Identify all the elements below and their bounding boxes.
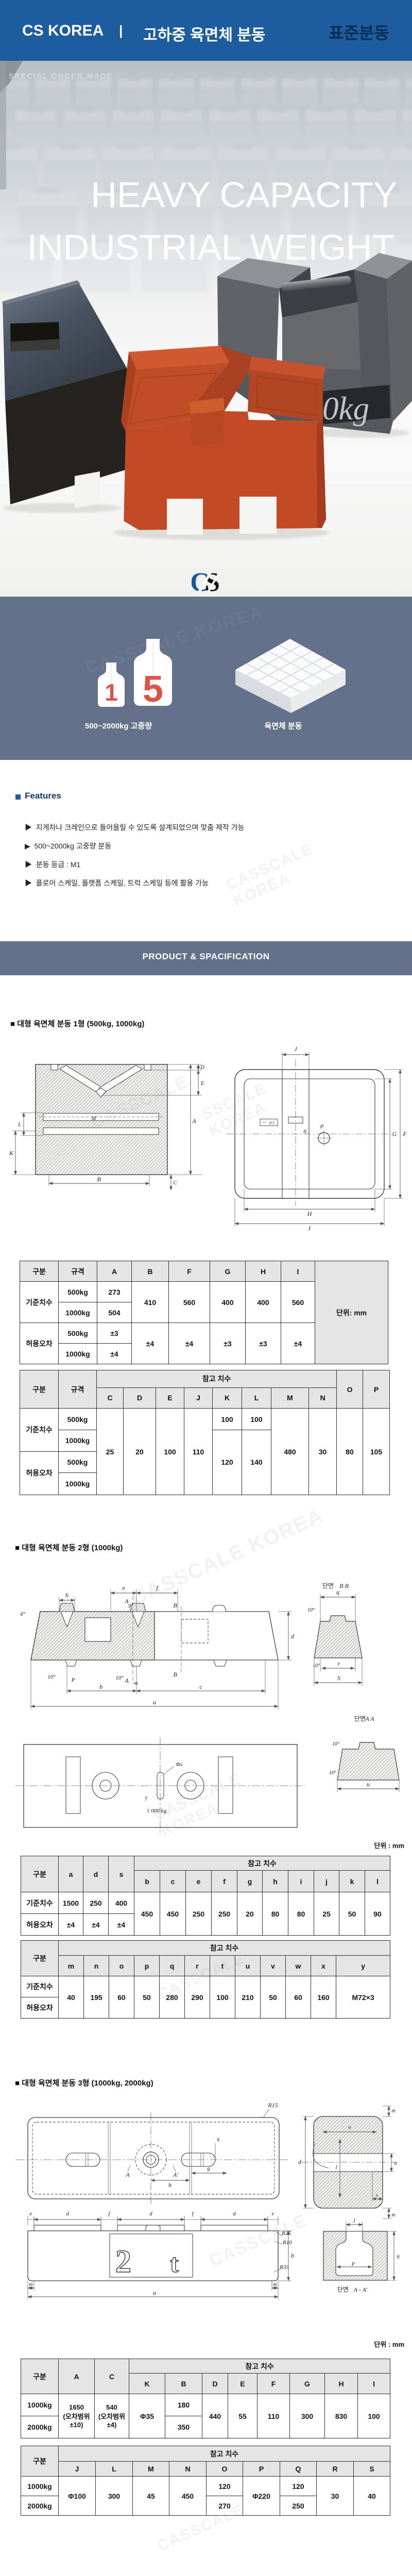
- svg-text:m: m: [29, 2282, 32, 2287]
- svg-text:J: J: [294, 1045, 297, 1053]
- svg-text:l: l: [335, 2164, 337, 2171]
- svg-text:b: b: [99, 1683, 102, 1690]
- svg-text:A - A': A - A': [353, 2286, 368, 2293]
- svg-text:h: h: [65, 1591, 68, 1599]
- svg-text:t: t: [170, 2249, 179, 2278]
- svg-text:d: d: [298, 2158, 302, 2165]
- svg-text:q: q: [397, 2253, 400, 2259]
- svg-text:D: D: [200, 1064, 204, 1071]
- svg-text:e: e: [30, 2211, 32, 2217]
- svg-text:e: e: [122, 1584, 125, 1591]
- svg-text:Φx: Φx: [176, 1761, 182, 1768]
- svg-text:d: d: [233, 2211, 236, 2217]
- svg-text:L: L: [18, 1122, 21, 1128]
- svg-text:A: A: [124, 1677, 129, 1684]
- svg-text:g: g: [129, 1602, 131, 1608]
- svg-text:s: s: [376, 2193, 378, 2198]
- svg-text:10°: 10°: [313, 1663, 320, 1669]
- svg-text:A: A: [125, 2171, 130, 2178]
- svg-text:a: a: [153, 2289, 156, 2296]
- svg-text:E: E: [200, 1080, 204, 1087]
- svg-text:10°: 10°: [307, 1607, 315, 1613]
- svg-text:m: m: [391, 2108, 395, 2114]
- svg-text:r: r: [338, 1660, 340, 1667]
- svg-text:단면: 단면: [337, 2286, 349, 2293]
- svg-text:A A: A A: [365, 1715, 374, 1722]
- svg-text:m: m: [273, 2282, 277, 2287]
- svg-text:0kg: 0kg: [322, 391, 369, 427]
- svg-text:I: I: [308, 1225, 311, 1232]
- svg-text:m: m: [391, 2212, 395, 2218]
- svg-text:f: f: [108, 2211, 111, 2217]
- svg-text:B: B: [97, 1176, 101, 1183]
- svg-text:B: B: [173, 1671, 177, 1678]
- svg-text:INDUSTRIAL WEIGHT: INDUSTRIAL WEIGHT: [27, 227, 394, 267]
- svg-text:K: K: [9, 1149, 14, 1157]
- svg-text:0.5: 0.5: [269, 1121, 274, 1125]
- svg-text:R35: R35: [279, 2264, 289, 2270]
- svg-text:P: P: [320, 1124, 324, 1130]
- svg-text:p: p: [351, 2260, 355, 2266]
- svg-text:c: c: [199, 1683, 202, 1690]
- svg-text:10°: 10°: [329, 1770, 336, 1776]
- svg-text:C: C: [173, 1180, 177, 1186]
- svg-text:10°: 10°: [115, 1675, 124, 1681]
- svg-text:F: F: [402, 1130, 407, 1138]
- svg-text:S: S: [337, 1674, 340, 1682]
- svg-text:o: o: [348, 2124, 351, 2130]
- svg-text:e: e: [272, 2211, 274, 2217]
- svg-text:b: b: [291, 2252, 294, 2259]
- svg-text:5: 5: [143, 669, 163, 710]
- svg-text:d: d: [149, 2211, 152, 2217]
- svg-text:1: 1: [105, 679, 118, 706]
- svg-text:d: d: [66, 2211, 69, 2217]
- svg-text:B: B: [173, 1602, 177, 1609]
- svg-text:10°: 10°: [47, 1674, 56, 1680]
- svg-text:G: G: [392, 1130, 397, 1138]
- svg-text:k: k: [217, 2137, 220, 2143]
- svg-text:m: m: [134, 1680, 138, 1686]
- svg-text:g: g: [207, 2165, 210, 2172]
- svg-text:q: q: [336, 1588, 339, 1596]
- svg-text:R15: R15: [267, 2102, 278, 2109]
- svg-text:P: P: [71, 1677, 75, 1683]
- svg-text:4°: 4°: [20, 1611, 26, 1617]
- svg-text:A': A': [173, 2171, 178, 2178]
- svg-text:d: d: [291, 1633, 295, 1640]
- svg-text:단면: 단면: [322, 1582, 334, 1589]
- svg-text:2: 2: [115, 2244, 131, 2279]
- svg-text:A: A: [124, 1598, 129, 1605]
- svg-text:단면: 단면: [354, 1715, 366, 1722]
- svg-text:h: h: [168, 2181, 171, 2189]
- svg-text:j: j: [352, 2217, 355, 2223]
- svg-text:u: u: [367, 1781, 370, 1788]
- svg-text:n: n: [394, 2161, 397, 2166]
- svg-text:f: f: [192, 2211, 194, 2217]
- svg-text:HEAVY CAPACITY: HEAVY CAPACITY: [91, 175, 397, 215]
- svg-text:10°: 10°: [332, 1741, 339, 1747]
- svg-text:a: a: [153, 1699, 156, 1706]
- svg-text:y: y: [145, 1795, 148, 1801]
- svg-text:N: N: [303, 1129, 307, 1135]
- svg-text:B B: B B: [339, 1582, 349, 1589]
- svg-text:H: H: [307, 1210, 313, 1217]
- svg-text:A: A: [192, 1117, 196, 1125]
